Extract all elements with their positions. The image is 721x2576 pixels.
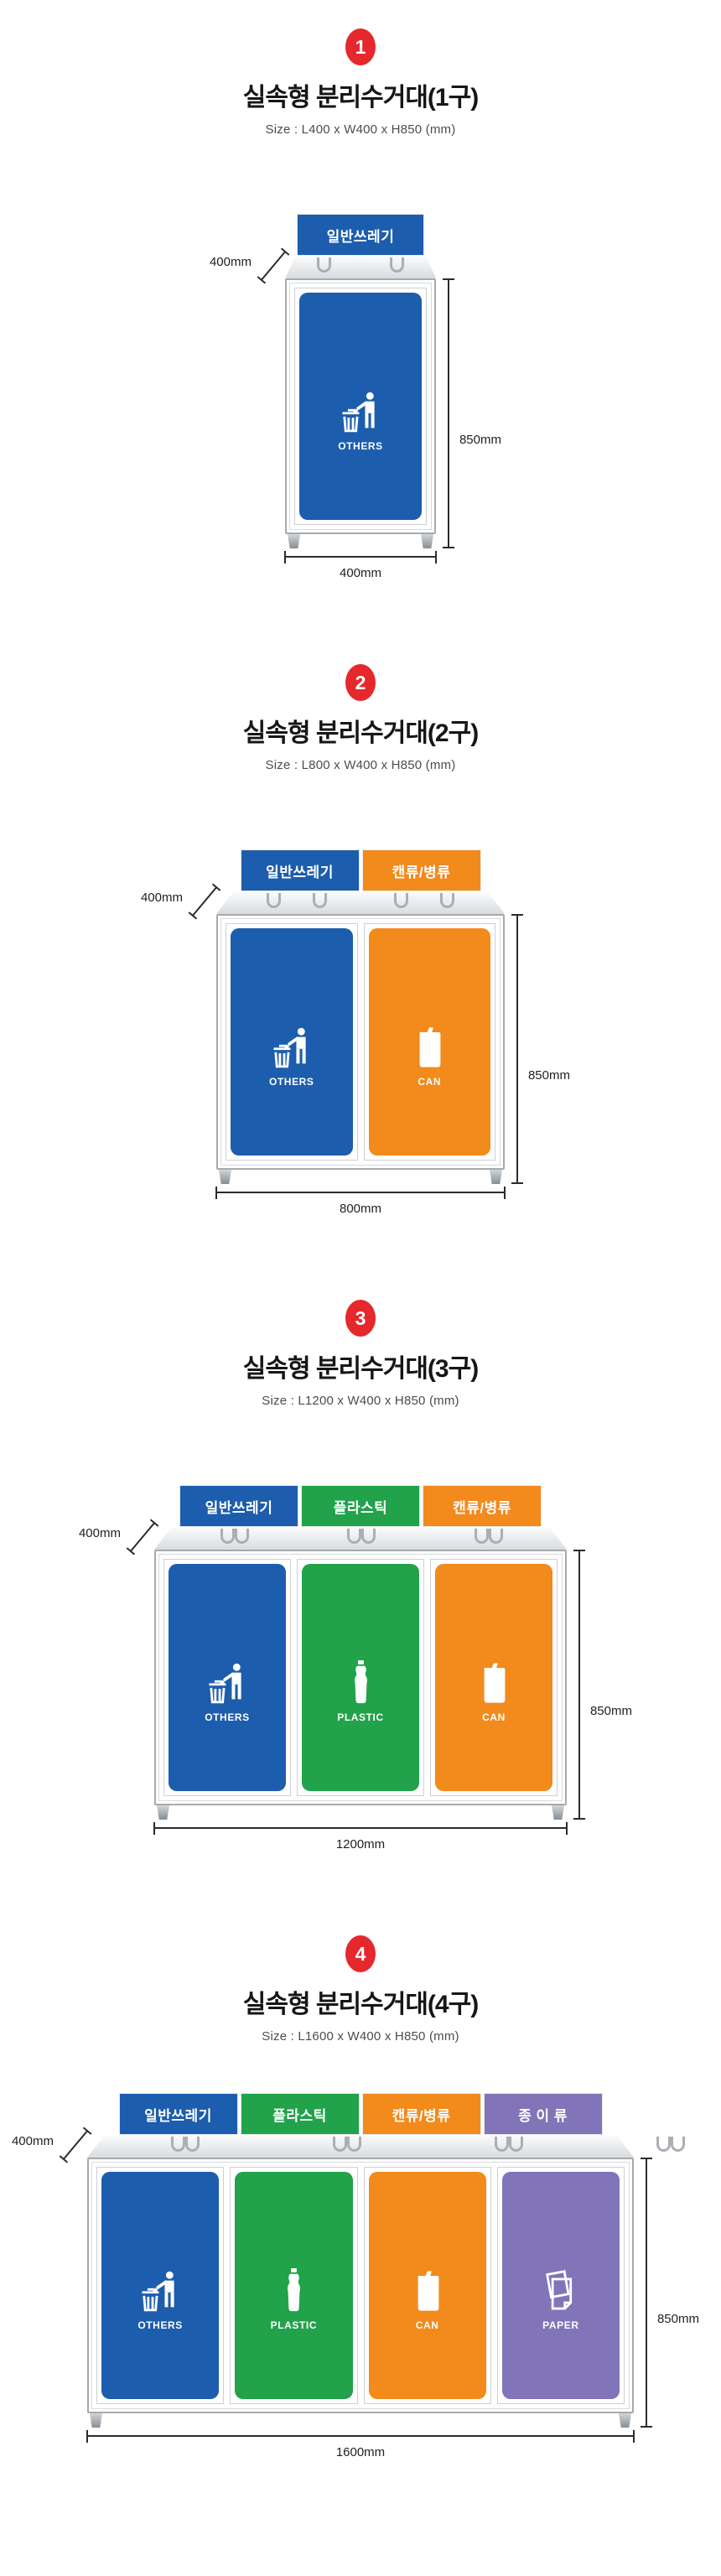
- litter-person-icon: [204, 1660, 251, 1706]
- bag-hook-icon: [656, 2137, 671, 2152]
- depth-dimension-label: 400mm: [141, 891, 183, 905]
- bin-cell: CAN: [364, 2167, 491, 2404]
- leg: [421, 534, 433, 548]
- bin-cell: CAN: [364, 923, 496, 1161]
- sign-panel: 일반쓰레기: [120, 2094, 237, 2134]
- bin-cell: CAN: [430, 1559, 558, 1796]
- can-icon: [480, 1660, 508, 1706]
- size-spec: Size : L400 x W400 x H850 (mm): [266, 122, 456, 137]
- hooks-row: [233, 892, 488, 914]
- bin-body: OTHERS PLASTIC CAN: [87, 2158, 634, 2413]
- sign-panel: 일반쓰레기: [180, 1486, 298, 1526]
- bag-hook-icon: [171, 2137, 185, 2152]
- bin-panel-others: OTHERS: [169, 1564, 286, 1791]
- width-dimension-line: [285, 556, 436, 558]
- width-dimension-line: [216, 1192, 505, 1193]
- height-dimension-line: [448, 278, 449, 548]
- bag-hook-icon: [347, 2137, 361, 2152]
- bin-cell: OTHERS: [294, 288, 427, 525]
- hook-group: [104, 2136, 266, 2158]
- sign-row: 일반쓰레기: [285, 215, 436, 255]
- height-dimension-label: 850mm: [657, 2312, 699, 2326]
- hook-group: [298, 1528, 426, 1550]
- panel-label: CAN: [418, 1076, 441, 1088]
- product-section-1: 1 실속형 분리수거대(1구) Size : L400 x W400 x H85…: [0, 29, 721, 580]
- bin-body: OTHERS: [285, 278, 436, 534]
- bin-cell: PAPER: [497, 2167, 625, 2404]
- product-section-3: 3 실속형 분리수거대(3구) Size : L1200 x W400 x H8…: [0, 1300, 721, 1851]
- panel-label: OTHERS: [137, 2319, 183, 2331]
- legs-row: [87, 2413, 634, 2428]
- depth-dimension-line: [192, 887, 217, 917]
- bag-hook-icon: [235, 1529, 249, 1544]
- litter-person-icon: [337, 389, 384, 434]
- size-spec: Size : L1600 x W400 x H850 (mm): [262, 2029, 459, 2044]
- paper-icon: [540, 2268, 582, 2314]
- bin-panel-others: OTHERS: [101, 2172, 219, 2399]
- bag-hook-icon: [347, 1529, 361, 1544]
- width-dimension-label: 1200mm: [154, 1837, 567, 1851]
- leg: [219, 1170, 231, 1184]
- width-dimension-line: [87, 2435, 634, 2437]
- litter-person-icon: [268, 1025, 315, 1070]
- panel-label: OTHERS: [205, 1711, 250, 1723]
- leg: [157, 1805, 169, 1820]
- depth-dimension-label: 400mm: [210, 255, 252, 269]
- bin-cell: OTHERS: [226, 923, 358, 1161]
- bag-hook-icon: [509, 2137, 523, 2152]
- sign-row: 일반쓰레기 캔류/병류: [216, 850, 505, 891]
- panel-label: PLASTIC: [337, 1711, 384, 1723]
- bin-panel-plastic: PLASTIC: [235, 2172, 352, 2399]
- sign-panel: 캔류/병류: [363, 850, 480, 891]
- can-icon: [413, 2268, 442, 2314]
- bin-panel-others: OTHERS: [231, 928, 353, 1156]
- depth-dimension-line: [130, 1523, 155, 1552]
- panel-label: PLASTIC: [271, 2319, 318, 2331]
- bag-hook-icon: [489, 1529, 503, 1544]
- bag-hook-icon: [313, 893, 327, 908]
- size-spec: Size : L800 x W400 x H850 (mm): [266, 758, 456, 772]
- bin-panel-can: CAN: [369, 928, 491, 1156]
- leg: [490, 1170, 502, 1184]
- plastic-bottle-icon: [350, 1660, 372, 1706]
- bag-hook-icon: [267, 893, 281, 908]
- bag-hook-icon: [495, 2137, 509, 2152]
- top-frame: [87, 2136, 634, 2158]
- section-number-badge: 2: [345, 664, 376, 701]
- leg: [552, 1805, 564, 1820]
- can-icon: [415, 1025, 443, 1070]
- width-dimension-line: [154, 1827, 567, 1829]
- bin-body: OTHERS CAN: [216, 914, 505, 1170]
- height-dimension-label: 850mm: [459, 433, 501, 447]
- panel-label: CAN: [482, 1711, 506, 1723]
- bin-diagram-4: 일반쓰레기 플라스틱 캔류/병류 종 이 류: [87, 2094, 634, 2459]
- width-dimension-label: 800mm: [216, 1202, 505, 1216]
- top-frame: [285, 257, 436, 278]
- bin-cell: PLASTIC: [297, 1559, 424, 1796]
- bag-hook-icon: [390, 257, 404, 273]
- bag-hook-icon: [361, 1529, 376, 1544]
- bag-hook-icon: [220, 1529, 235, 1544]
- section-number-badge: 3: [345, 1300, 376, 1337]
- product-section-4: 4 실속형 분리수거대(4구) Size : L1600 x W400 x H8…: [0, 1935, 721, 2459]
- depth-dimension-line: [63, 2131, 88, 2160]
- sign-panel: 일반쓰레기: [298, 215, 423, 255]
- bag-hook-icon: [671, 2137, 685, 2152]
- bin-panel-paper: PAPER: [502, 2172, 620, 2399]
- sign-row: 일반쓰레기 플라스틱 캔류/병류 종 이 류: [87, 2094, 634, 2134]
- bin-panel-plastic: PLASTIC: [302, 1564, 419, 1791]
- height-dimension-line: [578, 1550, 580, 1820]
- hook-group: [233, 892, 360, 914]
- sign-panel: 플라스틱: [302, 1486, 419, 1526]
- hook-group: [266, 2136, 428, 2158]
- bin-cell: OTHERS: [163, 1559, 291, 1796]
- legs-row: [285, 534, 436, 548]
- height-dimension-line: [646, 2158, 647, 2428]
- depth-dimension-label: 400mm: [12, 2134, 54, 2148]
- sign-panel: 종 이 류: [485, 2094, 602, 2134]
- panel-label: PAPER: [542, 2319, 578, 2331]
- depth-dimension-label: 400mm: [79, 1526, 121, 1540]
- section-title: 실속형 분리수거대(3구): [243, 1348, 478, 1384]
- bin-diagram-1: 일반쓰레기: [285, 215, 436, 580]
- height-dimension-label: 850mm: [528, 1068, 570, 1083]
- size-spec: Size : L1200 x W400 x H850 (mm): [262, 1394, 459, 1408]
- bin-body: OTHERS PLASTIC CAN: [154, 1550, 567, 1805]
- top-frame: [154, 1528, 567, 1550]
- sign-panel: 캔류/병류: [363, 2094, 480, 2134]
- width-dimension-label: 1600mm: [87, 2445, 634, 2459]
- legs-row: [216, 1170, 505, 1184]
- sign-panel: 일반쓰레기: [241, 850, 359, 891]
- hook-group: [589, 2136, 721, 2158]
- hook-group: [425, 1528, 552, 1550]
- bin-diagram-3: 일반쓰레기 플라스틱 캔류/병류: [154, 1486, 567, 1851]
- bag-hook-icon: [440, 893, 454, 908]
- litter-person-icon: [137, 2268, 184, 2314]
- section-title: 실속형 분리수거대(4구): [243, 1983, 478, 2020]
- hook-group: [171, 1528, 298, 1550]
- bag-hook-icon: [475, 1529, 489, 1544]
- width-dimension-label: 400mm: [285, 566, 436, 580]
- leg: [90, 2413, 102, 2428]
- hooks-row: [104, 2136, 617, 2158]
- bag-hook-icon: [317, 257, 331, 273]
- plastic-bottle-icon: [283, 2268, 305, 2314]
- bin-cell: OTHERS: [96, 2167, 224, 2404]
- bin-cell: PLASTIC: [230, 2167, 357, 2404]
- section-number-badge: 1: [345, 29, 376, 65]
- sign-panel: 캔류/병류: [423, 1486, 541, 1526]
- depth-dimension-line: [261, 252, 286, 281]
- bag-hook-icon: [394, 893, 408, 908]
- panel-label: OTHERS: [338, 440, 383, 452]
- sign-row: 일반쓰레기 플라스틱 캔류/병류: [154, 1486, 567, 1526]
- panel-label: CAN: [416, 2319, 439, 2331]
- legs-row: [154, 1805, 567, 1820]
- top-frame: [216, 892, 505, 914]
- bag-hook-icon: [185, 2137, 200, 2152]
- section-number-badge: 4: [345, 1935, 376, 1972]
- hooks-row: [302, 257, 419, 278]
- sign-panel: 플라스틱: [241, 2094, 359, 2134]
- hook-group: [360, 892, 488, 914]
- section-title: 실속형 분리수거대(2구): [243, 712, 478, 749]
- leg: [288, 534, 300, 548]
- bin-diagram-2: 일반쓰레기 캔류/병류: [216, 850, 505, 1216]
- bin-panel-can: CAN: [435, 1564, 552, 1791]
- bag-hook-icon: [333, 2137, 347, 2152]
- product-section-2: 2 실속형 분리수거대(2구) Size : L800 x W400 x H85…: [0, 664, 721, 1216]
- hooks-row: [171, 1528, 550, 1550]
- hook-group: [302, 257, 419, 278]
- panel-label: OTHERS: [269, 1076, 314, 1088]
- bin-panel-can: CAN: [369, 2172, 486, 2399]
- section-title: 실속형 분리수거대(1구): [243, 76, 478, 113]
- leg: [619, 2413, 631, 2428]
- hook-group: [428, 2136, 589, 2158]
- height-dimension-line: [516, 914, 518, 1184]
- bin-panel-others: OTHERS: [299, 293, 422, 520]
- height-dimension-label: 850mm: [590, 1704, 632, 1718]
